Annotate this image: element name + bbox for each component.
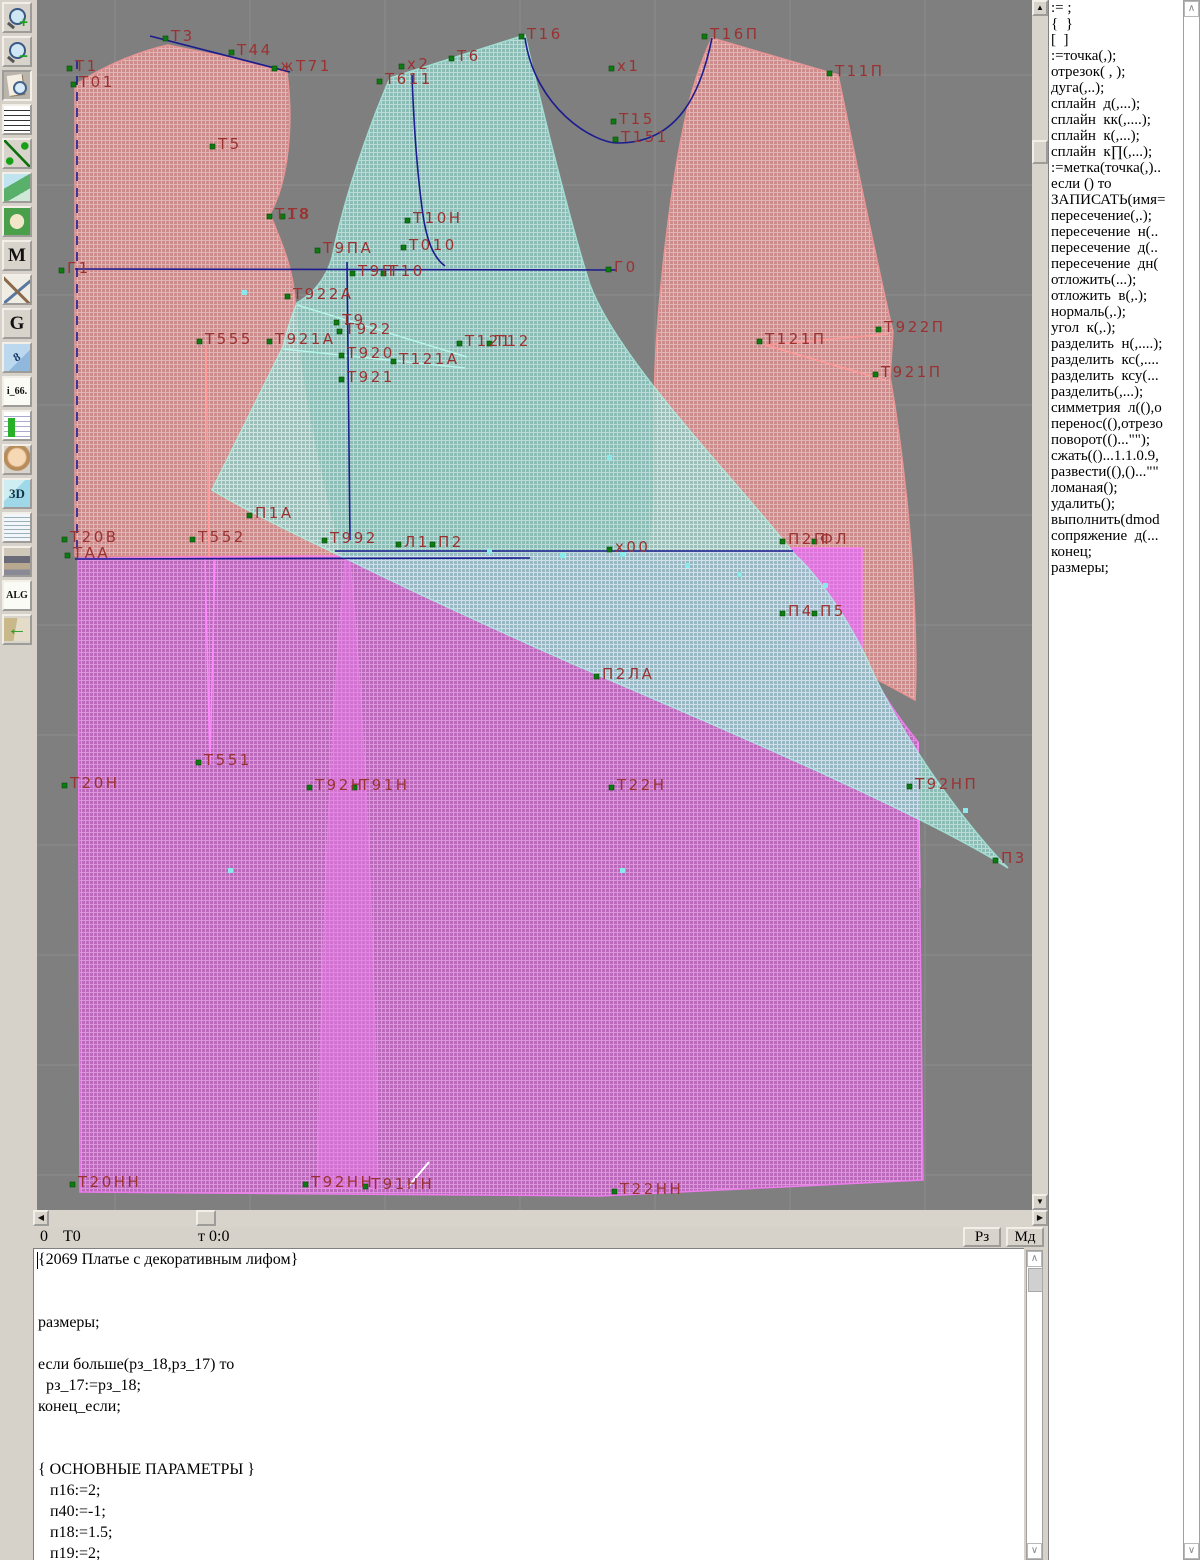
command-item[interactable]: развести((),()..."" <box>1049 464 1184 480</box>
point-marker <box>606 267 611 272</box>
portrait-icon[interactable] <box>2 444 32 475</box>
point-marker <box>377 79 382 84</box>
command-item[interactable]: [ ] <box>1049 32 1184 48</box>
drafting-tools-icon[interactable] <box>2 274 32 305</box>
code-scroll-down-icon: ∨ <box>1031 1545 1038 1556</box>
point-label-Т8: Т8 <box>287 205 312 223</box>
point-label-Т92НП: Т92НП <box>914 775 978 793</box>
command-item[interactable]: если () то <box>1049 176 1184 192</box>
command-item[interactable]: :=метка(точка(,).. <box>1049 160 1184 176</box>
canvas-vscroll-thumb[interactable] <box>1032 140 1048 164</box>
scroll-left-button[interactable]: ◀ <box>33 1210 49 1226</box>
code-line <box>34 1270 1024 1291</box>
point-marker <box>907 784 912 789</box>
command-item[interactable]: пересечение дн( <box>1049 256 1184 272</box>
point-marker <box>190 537 195 542</box>
code-line <box>34 1438 1024 1459</box>
point-label-Т20НН: Т20НН <box>77 1173 141 1191</box>
status-index: 0 <box>40 1228 48 1246</box>
point-label-Т11П: Т11П <box>834 62 885 80</box>
point-marker <box>607 547 612 552</box>
point-marker <box>307 785 312 790</box>
point-label-П3: П3 <box>1001 849 1027 867</box>
measure-segment-icon[interactable] <box>2 138 32 169</box>
point-label-Т22Н: Т22Н <box>616 776 667 794</box>
point-marker <box>519 34 524 39</box>
command-item[interactable]: пересечение д(.. <box>1049 240 1184 256</box>
point-marker <box>780 611 785 616</box>
command-item[interactable]: разделить(,...); <box>1049 384 1184 400</box>
point-label-Г0: Г0 <box>614 258 638 276</box>
point-label-Т20Н: Т20Н <box>69 774 120 792</box>
point-label-Т91НН: Т91НН <box>370 1175 434 1193</box>
point-label-Т921: Т921 <box>346 368 395 386</box>
reference-marker <box>560 553 565 558</box>
point-label-Т922П: Т922П <box>883 318 946 336</box>
code-lines: {2069 Платье с декоративным лифом}размер… <box>34 1249 1024 1560</box>
point-label-Т22НН: Т22НН <box>619 1180 683 1198</box>
point-marker <box>334 320 339 325</box>
status-bar: 0 Т0 т 0:0 Рз Мд <box>33 1227 1048 1248</box>
code-line <box>34 1291 1024 1312</box>
command-item[interactable]: :=точка(,); <box>1049 48 1184 64</box>
point-marker <box>339 377 344 382</box>
command-item[interactable]: дуга(,..); <box>1049 80 1184 96</box>
point-marker <box>59 268 64 273</box>
point-label-Т010: Т010 <box>408 236 457 254</box>
command-item[interactable]: отрезок( , ); <box>1049 64 1184 80</box>
m-mode-icon[interactable]: M <box>2 240 32 271</box>
code-scroll-up-icon: ∧ <box>1031 1253 1038 1264</box>
scroll-right-icon: ▶ <box>1037 1213 1043 1222</box>
point-label-Л1: Л1 <box>404 533 430 551</box>
point-marker <box>612 1189 617 1194</box>
cmd-scroll-down-icon: ∨ <box>1188 1545 1195 1556</box>
point-marker <box>396 542 401 547</box>
code-scrollbar[interactable]: ∧ ∨ <box>1026 1250 1043 1560</box>
point-marker <box>267 214 272 219</box>
point-label-Т92Н: Т92Н <box>314 776 365 794</box>
point-label-Т6: Т6 <box>456 47 481 65</box>
scroll-up-button[interactable]: ▲ <box>1032 0 1048 16</box>
scroll-up-icon: ▲ <box>1036 3 1044 12</box>
alg-icon[interactable]: ALG <box>2 580 32 611</box>
point-label-Г1: Г1 <box>67 259 91 277</box>
command-item[interactable]: сплайн кк(,....); <box>1049 112 1184 128</box>
command-item[interactable]: угол к(,.); <box>1049 320 1184 336</box>
point-marker <box>594 674 599 679</box>
point-marker <box>272 66 277 71</box>
reference-marker <box>963 808 968 813</box>
point-marker <box>609 785 614 790</box>
code-line <box>34 1417 1024 1438</box>
command-item[interactable]: сплайн к(,...); <box>1049 128 1184 144</box>
point-label-Т10Н: Т10Н <box>412 209 463 227</box>
exit-icon[interactable]: ← <box>2 614 32 645</box>
point-marker <box>457 341 462 346</box>
point-marker <box>873 372 878 377</box>
point-marker <box>993 858 998 863</box>
point-label-Т3: Т3 <box>170 27 195 45</box>
point-label-Т5: Т5 <box>217 135 242 153</box>
pattern-piece-icon[interactable] <box>2 206 32 237</box>
point-marker <box>876 327 881 332</box>
command-item[interactable]: пересечение(,.); <box>1049 208 1184 224</box>
code-scroll-down-button[interactable]: ∨ <box>1027 1543 1042 1559</box>
command-item[interactable]: размеры; <box>1049 560 1184 576</box>
command-list: := ;{ }[ ]:=точка(,);отрезок( , );дуга(,… <box>1048 0 1184 1560</box>
point-label-жТ71: жТ71 <box>280 57 332 75</box>
point-marker <box>339 353 344 358</box>
point-marker <box>322 538 327 543</box>
command-item[interactable]: разделить ксу(... <box>1049 368 1184 384</box>
scroll-down-icon: ▼ <box>1036 1197 1044 1206</box>
reference-marker <box>242 290 247 295</box>
point-marker <box>827 71 832 76</box>
reference-marker <box>823 583 828 588</box>
md-button[interactable]: Мд <box>1006 1227 1044 1247</box>
code-line: { ОСНОВНЫЕ ПАРАМЕТРЫ } <box>34 1459 1024 1480</box>
command-item[interactable]: сплайн д(,...); <box>1049 96 1184 112</box>
point-label-Т551: Т551 <box>203 751 252 769</box>
notes-icon[interactable] <box>2 512 32 543</box>
command-item[interactable]: перенос((),отрезо <box>1049 416 1184 432</box>
code-line: {2069 Платье с декоративным лифом} <box>34 1249 1024 1270</box>
zoom-in-icon[interactable]: + <box>2 2 32 33</box>
point-label-Т12: Т12 <box>494 332 531 350</box>
scroll-down-button[interactable]: ▼ <box>1032 1194 1048 1210</box>
i66-icon-label: i_66. <box>7 386 27 397</box>
threed-icon[interactable]: 3D <box>2 478 32 509</box>
point-label-Т922: Т922 <box>344 320 393 338</box>
code-line: рз_17:=рз_18; <box>34 1375 1024 1396</box>
cmd-scroll-up-icon: ∧ <box>1188 3 1195 14</box>
code-line: п40:=-1; <box>34 1501 1024 1522</box>
point-label-Т992: Т992 <box>329 529 378 547</box>
point-marker <box>67 66 72 71</box>
command-item[interactable]: ЗАПИСАТЬ(имя= <box>1049 192 1184 208</box>
point-label-ТАА: ТАА <box>72 544 110 562</box>
point-label-Т15: Т15 <box>618 110 655 128</box>
point-label-х00: х00 <box>615 538 650 556</box>
ruler-icon-label: 8 <box>11 350 24 366</box>
point-marker <box>65 553 70 558</box>
code-line: размеры; <box>34 1312 1024 1333</box>
point-label-Т01: Т01 <box>78 73 115 91</box>
point-marker <box>62 783 67 788</box>
command-item[interactable]: конец; <box>1049 544 1184 560</box>
point-label-П2ЛА: П2ЛА <box>602 665 654 683</box>
point-label-Т611: Т611 <box>384 70 433 88</box>
command-item[interactable]: поворот(()...""); <box>1049 432 1184 448</box>
point-marker <box>405 218 410 223</box>
pattern-drawing: Т1Т01Т3Т44жТ71Т5Т18Т8Г1Т9ПАТ10НТ010Т9ПТ1… <box>37 0 1032 1210</box>
point-marker <box>303 1182 308 1187</box>
point-label-Т10: Т10 <box>388 262 425 280</box>
table-icon[interactable] <box>2 410 32 441</box>
point-marker <box>350 271 355 276</box>
canvas-vscrollbar[interactable]: ▲ ▼ <box>1032 0 1048 1210</box>
tool-palette: +−MG8i_66.3DALG← <box>0 0 35 692</box>
command-item[interactable]: разделить н(,....); <box>1049 336 1184 352</box>
point-marker <box>449 56 454 61</box>
code-line: конец_если; <box>34 1396 1024 1417</box>
code-scroll-up-button[interactable]: ∧ <box>1027 1251 1042 1267</box>
command-item[interactable]: ломаная(); <box>1049 480 1184 496</box>
point-label-Т121П: Т121П <box>764 330 827 348</box>
point-marker <box>315 248 320 253</box>
code-line: п19:=2; <box>34 1543 1024 1560</box>
preview-pattern-icon[interactable] <box>2 70 32 101</box>
canvas-hscroll-thumb[interactable] <box>196 1210 216 1226</box>
cmd-scroll-up-button[interactable]: ∧ <box>1184 1 1199 17</box>
point-marker <box>267 339 272 344</box>
command-item[interactable]: { } <box>1049 16 1184 32</box>
point-label-Т44: Т44 <box>236 41 273 59</box>
g-mode-icon[interactable]: G <box>2 308 32 339</box>
threed-icon-label: 3D <box>9 486 25 502</box>
point-label-П2: П2 <box>438 533 464 551</box>
point-label-х1: х1 <box>617 57 640 75</box>
point-marker <box>757 339 762 344</box>
point-marker <box>337 329 342 334</box>
status-point: Т0 <box>63 1228 81 1246</box>
zoom-in-icon-badge: + <box>19 16 28 30</box>
point-label-Т922А: Т922А <box>292 285 354 303</box>
point-marker <box>62 537 67 542</box>
cmd-scroll-down-button[interactable]: ∨ <box>1184 1543 1199 1559</box>
zoom-out-icon-badge: − <box>19 50 28 64</box>
reference-marker <box>620 868 625 873</box>
text-caret <box>37 1252 38 1269</box>
point-marker <box>197 339 202 344</box>
point-marker <box>70 1182 75 1187</box>
point-marker <box>611 119 616 124</box>
point-label-Т921А: Т921А <box>274 330 336 348</box>
point-label-П5: П5 <box>820 602 846 620</box>
reference-marker <box>228 868 233 873</box>
reference-marker <box>487 549 492 554</box>
code-line <box>34 1333 1024 1354</box>
map-icon[interactable] <box>2 172 32 203</box>
rz-button[interactable]: Рз <box>963 1227 1001 1247</box>
command-item[interactable]: выполнить(dmod <box>1049 512 1184 528</box>
command-item[interactable]: нормаль(,.); <box>1049 304 1184 320</box>
code-line: если больше(рз_18,рз_17) то <box>34 1354 1024 1375</box>
books-icon[interactable] <box>2 546 32 577</box>
grid-icon[interactable] <box>2 104 32 135</box>
alg-icon-label: ALG <box>6 590 28 601</box>
code-line: п18:=1.5; <box>34 1522 1024 1543</box>
point-marker <box>780 539 785 544</box>
point-label-Т16П: Т16П <box>709 25 760 43</box>
command-item[interactable]: отложить в(,.); <box>1049 288 1184 304</box>
point-marker <box>247 513 252 518</box>
code-editor[interactable]: {2069 Платье с декоративным лифом}размер… <box>33 1248 1024 1560</box>
zoom-out-icon[interactable]: − <box>2 36 32 67</box>
exit-icon-label: ← <box>4 618 30 641</box>
point-label-Т552: Т552 <box>197 528 246 546</box>
i66-icon[interactable]: i_66. <box>2 376 32 407</box>
point-marker <box>285 294 290 299</box>
point-marker <box>613 137 618 142</box>
point-marker <box>196 760 201 765</box>
point-label-Т91Н: Т91Н <box>359 776 410 794</box>
command-item[interactable]: пересечение н(.. <box>1049 224 1184 240</box>
canvas-hscrollbar[interactable]: ◀ ▶ <box>33 1210 1048 1227</box>
point-marker <box>163 36 168 41</box>
command-item[interactable]: сопряжение д(... <box>1049 528 1184 544</box>
scroll-left-icon: ◀ <box>38 1213 44 1222</box>
reference-marker <box>607 455 612 460</box>
code-line: п16:=2; <box>34 1480 1024 1501</box>
cad-application-window: { "toolbar": {"items": [ {"name":"zoom-i… <box>0 0 1200 1560</box>
command-item[interactable]: := ; <box>1049 0 1184 16</box>
point-label-Т16: Т16 <box>526 25 563 43</box>
command-list-scrollbar[interactable]: ∧ ∨ <box>1183 0 1200 1560</box>
point-label-Т555: Т555 <box>204 330 253 348</box>
point-marker <box>401 245 406 250</box>
code-scroll-thumb[interactable] <box>1028 1268 1043 1292</box>
reference-marker <box>685 563 690 568</box>
m-mode-icon-label: M <box>8 245 26 267</box>
drawing-canvas[interactable]: Т1Т01Т3Т44жТ71Т5Т18Т8Г1Т9ПАТ10НТ010Т9ПТ1… <box>37 0 1033 1210</box>
point-label-П1А: П1А <box>255 504 294 522</box>
point-label-Т121А: Т121А <box>398 350 460 368</box>
command-item[interactable]: сплайн к∏(,...); <box>1049 144 1184 160</box>
reference-marker <box>737 572 742 577</box>
point-label-ФЛ: ФЛ <box>820 530 849 548</box>
command-item[interactable]: симметрия л((),о <box>1049 400 1184 416</box>
point-label-Т92НН: Т92НН <box>310 1173 374 1191</box>
point-label-Т920: Т920 <box>346 344 395 362</box>
ruler-icon[interactable]: 8 <box>2 342 32 373</box>
point-marker <box>430 542 435 547</box>
point-marker <box>609 66 614 71</box>
point-marker <box>210 144 215 149</box>
point-marker <box>399 64 404 69</box>
point-marker <box>229 50 234 55</box>
command-item[interactable]: удалить(); <box>1049 496 1184 512</box>
scroll-right-button[interactable]: ▶ <box>1032 1210 1048 1226</box>
point-marker <box>702 34 707 39</box>
command-item[interactable]: отложить(...); <box>1049 272 1184 288</box>
point-label-П4: П4 <box>788 602 814 620</box>
point-label-Т9ПА: Т9ПА <box>322 239 373 257</box>
point-label-Т151: Т151 <box>620 128 669 146</box>
command-item[interactable]: разделить кс(,.... <box>1049 352 1184 368</box>
point-label-Т921П: Т921П <box>880 363 943 381</box>
status-coords: т 0:0 <box>198 1228 229 1246</box>
command-item[interactable]: сжать(()...1.1.0.9, <box>1049 448 1184 464</box>
g-mode-icon-label: G <box>10 313 25 335</box>
point-marker <box>71 82 76 87</box>
